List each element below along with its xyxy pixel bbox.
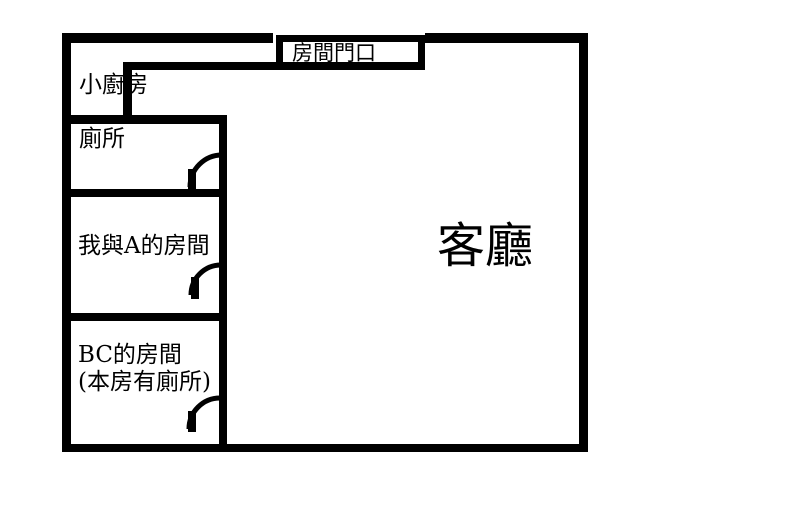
room-a-door-swing-icon [191,265,221,295]
room-bc-label: BC的房間 [78,342,211,369]
wall-outer-top-right [425,33,588,43]
wall-outer-right [579,33,588,452]
entrance-label: 房間門口 [292,41,376,65]
wall-outer-top-left [62,33,273,43]
wall-rooms-right [219,115,227,452]
floorplan-canvas: 房間門口 小廚房 廁所 我與A的房間 BC的房間 (本房有廁所) 客廳 [0,0,798,526]
wall-outer-left [62,33,71,452]
toilet-door-swing-icon [190,155,222,187]
room-bc-label-block: BC的房間 (本房有廁所) [78,342,211,396]
living-room-label: 客廳 [437,220,533,272]
room-me-a-label: 我與A的房間 [78,233,210,260]
toilet-label: 廁所 [79,126,125,153]
wall-outer-bottom [62,444,588,452]
room-bc-note: (本房有廁所) [78,369,211,396]
wall-kitchen-soffit [123,62,425,70]
entrance-box-left [276,35,283,70]
kitchen-label: 小廚房 [79,72,148,99]
entrance-box-right [418,35,425,70]
wall-room-a-bottom [62,313,227,321]
room-bc-door-swing-icon [189,398,220,429]
wall-toilet-top [62,115,227,124]
wall-toilet-bottom [62,189,227,197]
